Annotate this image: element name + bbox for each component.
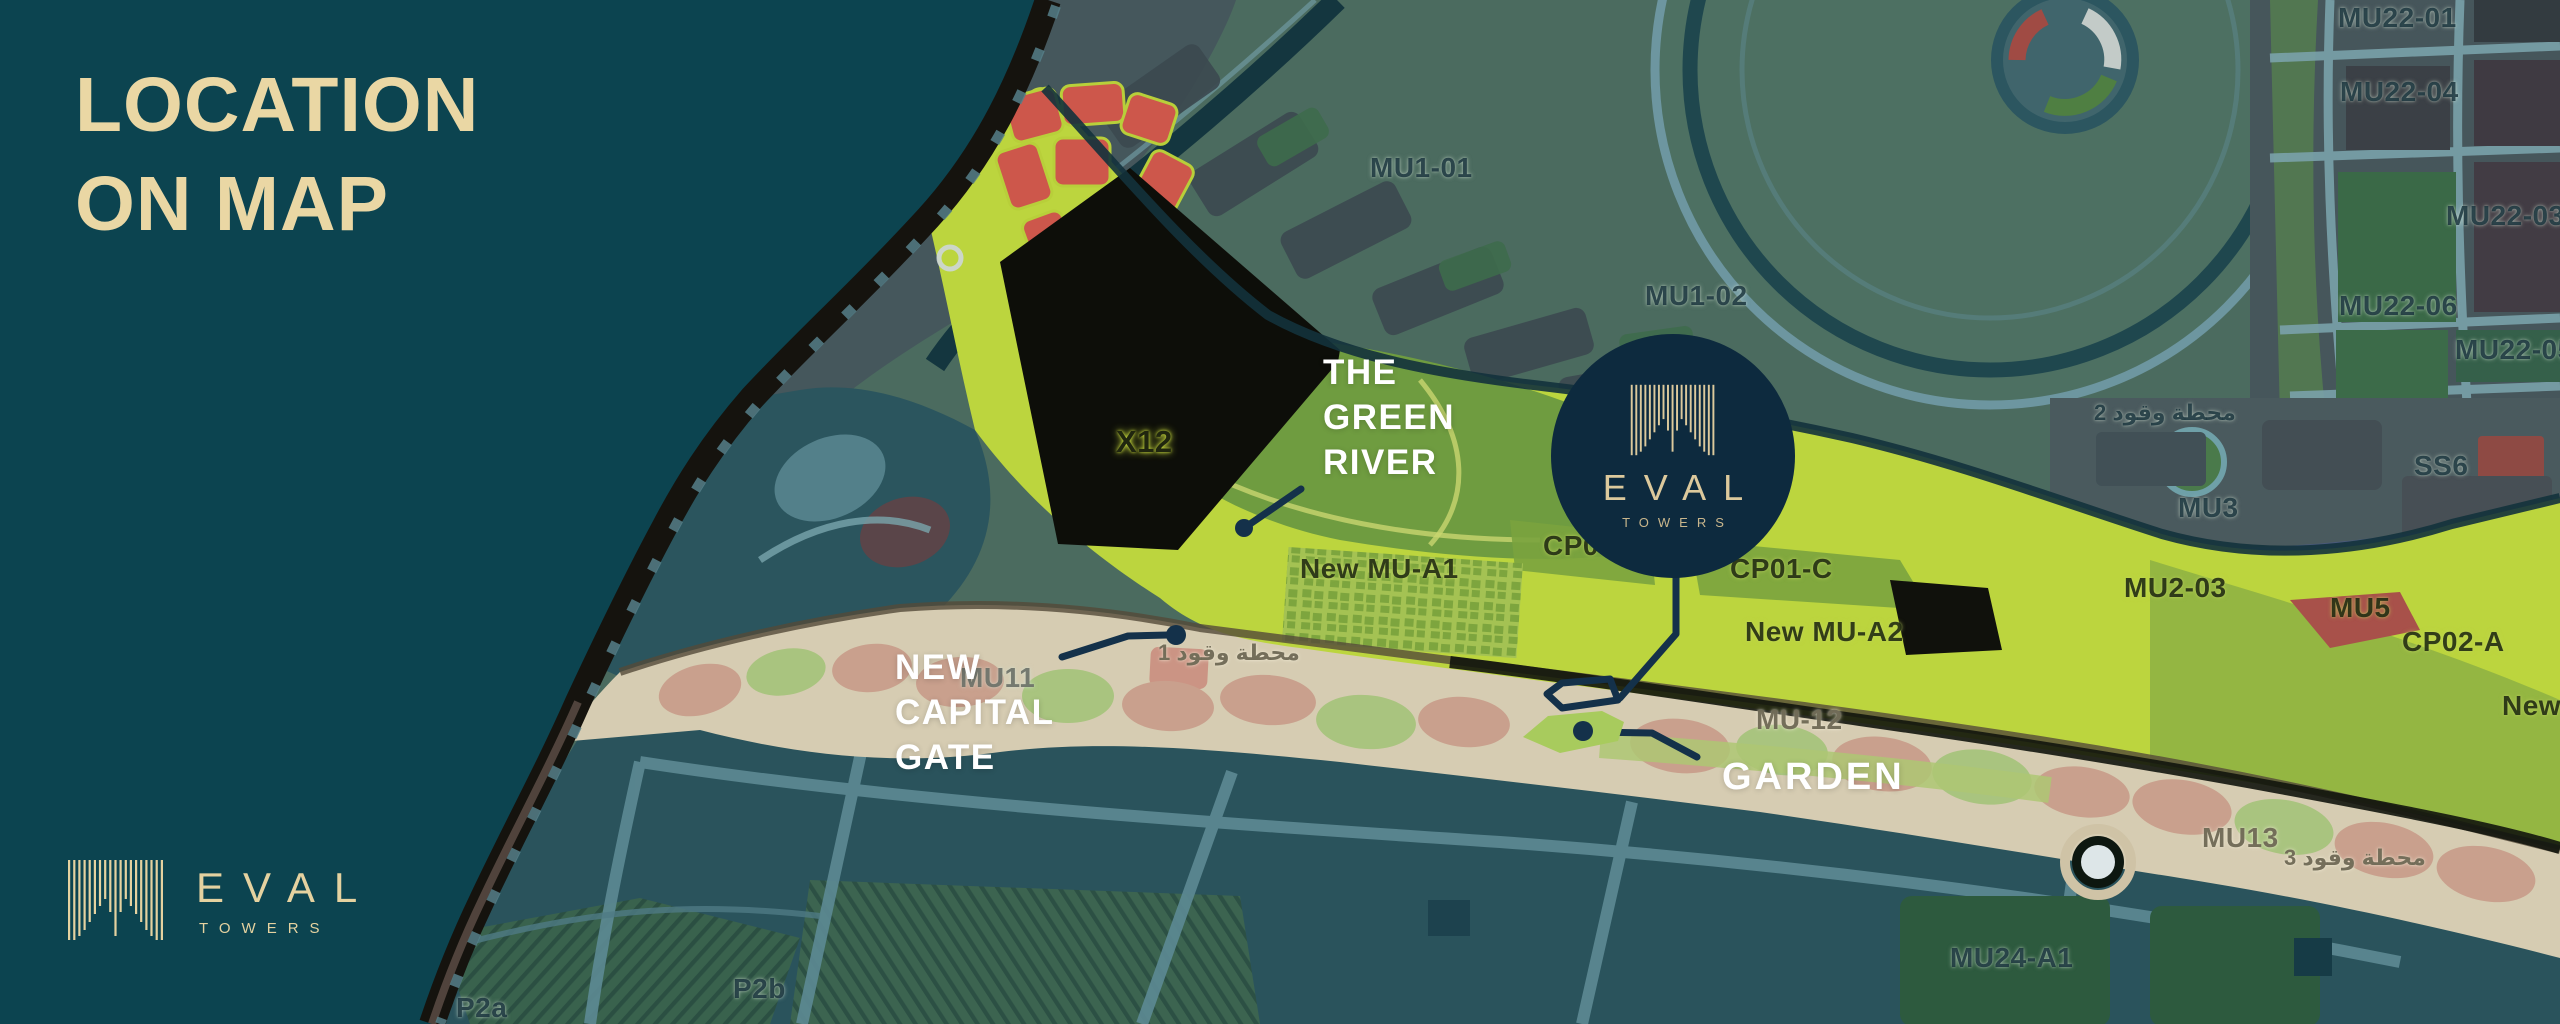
badge-brand-subtitle: TOWERS (1613, 515, 1733, 530)
zone-label-mu3: MU3 (2178, 492, 2239, 524)
zone-label-mu22-06: MU22-06 (2339, 290, 2458, 322)
stadium-circle (1997, 0, 2133, 128)
eval-logo-icon (1629, 383, 1717, 457)
zone-label-fuel-3: محطة وقود 3 (2284, 845, 2426, 871)
page-title: LOCATION ON MAP (75, 56, 479, 254)
zone-label-mu13: MU13 (2202, 822, 2279, 854)
zone-label-mu5: MU5 (2330, 592, 2391, 624)
annotation-line: RIVER (1323, 440, 1455, 485)
annotation-line: GREEN (1323, 395, 1455, 440)
eval-logo-icon (66, 858, 166, 942)
zone-label-fuel-1: محطة وقود 1 (1158, 640, 1300, 666)
page-title-line1: LOCATION (75, 56, 479, 155)
zone-label-x12: X12 (1116, 424, 1173, 460)
zone-label-mu22-03: MU22-03 (2446, 200, 2560, 232)
zone-label-p2b: P2b (733, 973, 786, 1005)
zone-label-p2a: P2a (456, 992, 507, 1024)
page-title-line2: ON MAP (75, 155, 479, 254)
annotation-garden: GARDEN (1722, 755, 1905, 800)
zone-label-mu1-02: MU1-02 (1645, 280, 1748, 312)
eval-towers-map-marker: EVAL TOWERS (1551, 334, 1795, 578)
zone-label-mu24-a1: MU24-A1 (1950, 942, 2073, 974)
zone-label-cp02-a: CP02-A (2402, 626, 2505, 658)
brand-subtitle: TOWERS (192, 920, 376, 937)
zone-label-mu22-01: MU22-01 (2338, 2, 2457, 34)
brand-name: EVAL (192, 864, 376, 912)
roundabout (2065, 829, 2131, 895)
zone-label-mu22-05: MU22-05 (2455, 334, 2560, 366)
zone-label-new-mu-a2: New MU-A2 (1745, 616, 1904, 648)
zone-label-mu-12: MU-12 (1756, 704, 1843, 736)
annotation-green-river: THE GREEN RIVER (1323, 350, 1455, 485)
brand-logo: EVAL TOWERS (66, 858, 376, 942)
zone-label-new-mu-a1: New MU-A1 (1300, 553, 1459, 585)
annotation-line: GATE (895, 735, 1055, 780)
zone-label-mu1-01: MU1-01 (1370, 152, 1473, 184)
zone-label-mu22-04: MU22-04 (2340, 76, 2459, 108)
dark-plot (1890, 580, 2002, 655)
annotation-line: THE (1323, 350, 1455, 395)
location-map-page: MU22-01 MU22-04 MU22-03 MU22-06 MU22-05 … (0, 0, 2560, 1024)
annotation-line: CAPITAL (895, 690, 1055, 735)
zone-label-ss6: SS6 (2414, 450, 2468, 482)
zone-label-new-edge: New (2502, 690, 2560, 722)
annotation-capital-gate: NEW CAPITAL GATE (895, 645, 1055, 780)
zone-label-mu2-03: MU2-03 (2124, 572, 2227, 604)
badge-brand-name: EVAL (1586, 467, 1760, 509)
annotation-line: NEW (895, 645, 1055, 690)
zone-label-cp01-c: CP01-C (1730, 553, 1833, 585)
zone-label-fuel-2: محطة وقود 2 (2094, 400, 2236, 426)
